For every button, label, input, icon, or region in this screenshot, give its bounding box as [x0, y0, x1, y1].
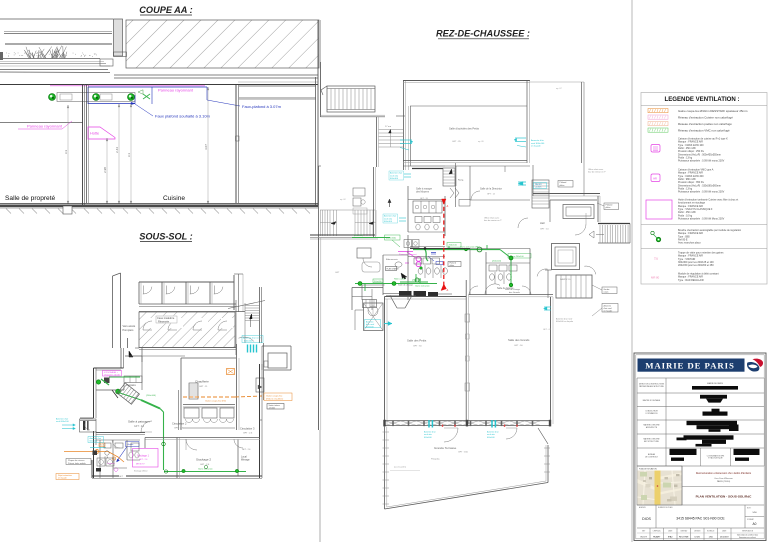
svg-text:Ø10cm chaufferie: Ø10cm chaufferie [266, 397, 284, 400]
svg-text:Rang.: Rang. [458, 180, 464, 182]
svg-text:ELIOT: ELIOT [641, 537, 648, 539]
svg-text:STOCKAGE +: STOCKAGE + [104, 371, 119, 374]
svg-text:plâtre: plâtre [560, 184, 566, 187]
svg-text:Hotte: Hotte [90, 132, 99, 136]
svg-text:Puissance absorbée : 0.09 kW m: Puissance absorbée : 0.09 kW mono 230V [678, 160, 725, 163]
svg-text:BET: BET [642, 531, 645, 533]
svg-text:GFT : 2.6: GFT : 2.6 [174, 428, 184, 430]
svg-text:Salle à patauger: Salle à patauger [128, 420, 150, 424]
svg-text:3.07: 3.07 [204, 144, 208, 150]
svg-text:ap. 02: ap. 02 [340, 199, 346, 201]
svg-text:3.1: 3.1 [127, 153, 131, 158]
svg-text:600x100: 600x100 [384, 221, 393, 223]
svg-text:ET ACOUSTIQUE: ET ACOUSTIQUE [708, 457, 723, 460]
svg-text:600x100: 600x100 [244, 340, 253, 342]
svg-text:GFT : 2.6: GFT : 2.6 [139, 459, 148, 461]
svg-text:Type : RAD REGULAIR: Type : RAD REGULAIR [678, 279, 704, 282]
svg-text:RIV-TIME: RIV-TIME [679, 537, 689, 539]
svg-text:Chaufferie: Chaufferie [195, 380, 209, 384]
svg-text:GFT : 50: GFT : 50 [413, 346, 422, 348]
svg-text:GFT : 10: GFT : 10 [540, 229, 549, 231]
svg-text:D/DS: D/DS [695, 537, 701, 539]
svg-text:Salle de la Directrice: Salle de la Directrice [480, 188, 503, 191]
svg-text:Prévoir hotte mobile: Prévoir hotte mobile [68, 462, 87, 465]
svg-text:HUART: HUART [653, 536, 661, 539]
svg-text:Restructuration et Extension d: Restructuration et Extension d'un Jardin… [696, 472, 752, 475]
svg-text:Amenée d'air: Amenée d'air [384, 215, 396, 218]
svg-text:Cuisine: Cuisine [163, 195, 185, 202]
svg-text:ap. 09: ap. 09 [478, 141, 484, 143]
svg-text:en façade: en façade [604, 311, 614, 313]
svg-text:des Moyens: des Moyens [416, 191, 430, 194]
svg-text:MR 80: MR 80 [651, 276, 660, 280]
svg-text:Amenée d'air: Amenée d'air [424, 431, 436, 434]
svg-text:Avec manchon placo: Avec manchon placo [678, 242, 701, 245]
svg-text:(accès jardin): (accès jardin) [394, 467, 406, 469]
svg-text:300x200: 300x200 [374, 281, 383, 283]
svg-text:2.44: 2.44 [115, 147, 119, 153]
svg-text:D'OPERATION: D'OPERATION [646, 412, 659, 415]
svg-text:PLAN CHANGE: PLAN CHANGE [387, 268, 400, 271]
svg-text:corps: corps [604, 291, 609, 293]
svg-text:Amenée: Amenée [366, 320, 374, 323]
svg-text:600x100: 600x100 [487, 437, 496, 439]
svg-text:Gaine coupe-feu Ø10cm DESSTAFF: Gaine coupe-feu Ø10cm DESSTAFF épaisseur… [678, 109, 748, 113]
svg-text:MAIRIE DE PARIS: MAIRIE DE PARIS [707, 382, 723, 385]
svg-text:Stockage référez: Stockage référez [134, 470, 148, 473]
svg-text:DESSIN: DESSIN [694, 531, 701, 533]
svg-text:GFT: GFT [335, 272, 340, 274]
svg-text:Gaine coupe-feu: Gaine coupe-feu [266, 395, 283, 397]
svg-text:A: A [447, 204, 449, 208]
svg-text:200x150 pour les 200/200 et 25: 200x150 pour les 200/200 et 250 [678, 264, 714, 267]
svg-text:Biberonnerie: Biberonnerie [386, 258, 399, 261]
svg-text:DIOS: DIOS [642, 517, 651, 521]
svg-text:600x100: 600x100 [424, 437, 433, 439]
svg-text:Vestiaires (4.05): Vestiaires (4.05) [104, 374, 120, 377]
svg-text:A0: A0 [753, 522, 757, 526]
svg-text:PATRIMOINE ARCHITECTURE: PATRIMOINE ARCHITECTURE [639, 385, 665, 388]
svg-text:(200x100): (200x100) [492, 261, 501, 263]
svg-text:Hotte cuisine: Hotte cuisine [394, 278, 406, 281]
svg-text:Ménage: Ménage [241, 459, 250, 462]
svg-text:01/04/19: 01/04/19 [720, 537, 729, 539]
svg-text:BET STRUCTURE: BET STRUCTURE [644, 441, 659, 443]
svg-text:17 mo: 17 mo [385, 126, 392, 128]
svg-text:plâtre: plâtre [450, 264, 455, 267]
svg-text:GFT : 11: GFT : 11 [199, 386, 208, 388]
svg-text:Circulation 2: Circulation 2 [172, 422, 187, 426]
svg-text:Puissance absorbée : 0.09 kW M: Puissance absorbée : 0.09 kW Mono 230V [678, 217, 725, 220]
svg-text:Stockage 2: Stockage 2 [196, 458, 211, 462]
svg-text:+0.45m: +0.45m [535, 187, 542, 189]
svg-text:des Grands: des Grands [509, 291, 520, 294]
svg-text:COUPE AA :: COUPE AA : [139, 5, 192, 15]
svg-text:ECH :: ECH : [747, 508, 752, 510]
svg-text:neuf otto: neuf otto [390, 174, 399, 177]
svg-text:GFT : 35: GFT : 35 [452, 141, 461, 143]
svg-text:Gaine extraction: Gaine extraction [198, 468, 213, 471]
svg-text:Salle des Petits: Salle des Petits [407, 339, 427, 343]
svg-text:A: A [447, 288, 449, 292]
svg-text:600x100: 600x100 [390, 178, 399, 180]
svg-text:RAMPE 5%: RAMPE 5% [560, 278, 571, 281]
svg-text:600x100: 600x100 [366, 327, 375, 329]
svg-text:neuf 600x100: neuf 600x100 [531, 143, 545, 145]
svg-text:(200x100): (200x100) [146, 395, 156, 397]
svg-text:Salle de change: Salle de change [398, 285, 414, 287]
svg-text:neuf otto: neuf otto [384, 217, 393, 220]
svg-text:Salle du Grande: Salle du Grande [497, 287, 514, 290]
svg-text:Faux-plafond à 3.07m: Faux-plafond à 3.07m [242, 104, 282, 109]
svg-text:Réservée: Réservée [158, 319, 170, 323]
svg-text:Amenée d'air: Amenée d'air [56, 418, 68, 421]
svg-text:neuf otto: neuf otto [424, 433, 433, 436]
svg-text:GFT : 50: GFT : 50 [514, 345, 523, 347]
svg-text:3.3: 3.3 [64, 150, 68, 155]
svg-text:plâtre: plâtre [606, 206, 612, 209]
svg-text:DE CONTROLE: DE CONTROLE [645, 457, 658, 459]
svg-text:GFT : 160: GFT : 160 [458, 452, 469, 454]
svg-text:Salle d'activités des Petits: Salle d'activités des Petits [449, 127, 480, 131]
svg-text:Circulation 3: Circulation 3 [240, 427, 255, 431]
svg-text:Pompiers: Pompiers [123, 328, 135, 332]
svg-text:Panneau rayonnant: Panneau rayonnant [27, 124, 63, 129]
svg-text:200x100: 200x100 [449, 245, 458, 247]
svg-text:REZ-DE-CHAUSSEE :: REZ-DE-CHAUSSEE : [436, 29, 530, 39]
svg-text:Hall: Hall [540, 221, 545, 225]
svg-text:Amenée: Amenée [604, 304, 612, 307]
svg-text:SOUS-SOL :: SOUS-SOL : [139, 232, 192, 242]
svg-text:GFT : 02: GFT : 02 [543, 329, 552, 331]
svg-text:Réseau d'extraction Cuisine no: Réseau d'extraction Cuisine non calorifu… [678, 116, 733, 120]
svg-text:ECHELLE: ECHELLE [707, 531, 714, 533]
svg-text:GFT : 2.6: GFT : 2.6 [243, 433, 253, 435]
svg-text:Panneau rayonnant: Panneau rayonnant [158, 88, 194, 93]
svg-text:Amenée d'air neuf: Amenée d'air neuf [556, 318, 573, 321]
svg-text:Grande Terrasse: Grande Terrasse [434, 446, 457, 450]
svg-text:Amenée d'air: Amenée d'air [390, 172, 402, 175]
svg-text:LEGENDE VENTILATION :: LEGENDE VENTILATION : [664, 96, 739, 103]
svg-text:en façade: en façade [531, 146, 541, 148]
svg-text:Office relais avec: Office relais avec [484, 218, 499, 220]
svg-text:Salle des Grands: Salle des Grands [508, 338, 530, 342]
svg-text:2.98: 2.98 [103, 167, 107, 173]
svg-text:en façade: en façade [58, 478, 68, 480]
svg-text:four de remise en T°: four de remise en T° [484, 220, 502, 222]
svg-text:PARIS (75016): PARIS (75016) [717, 480, 731, 483]
svg-text:neuf otto: neuf otto [487, 433, 496, 436]
svg-text:Gaine coupe-feu Ø10: Gaine coupe-feu Ø10 [205, 401, 227, 403]
svg-text:ARCHITECTE: ARCHITECTE [646, 426, 658, 429]
svg-text:Gaine extraction: Gaine extraction [415, 285, 430, 288]
svg-text:Amenée d'air: Amenée d'air [531, 139, 544, 142]
svg-text:IFAZ: IFAZ [668, 536, 673, 539]
svg-text:Amenée d'air: Amenée d'air [487, 431, 499, 434]
svg-text:MR 80 TV: MR 80 TV [136, 464, 145, 466]
svg-text:HR: HR [653, 176, 657, 180]
svg-text:MAITRE D'OUVRAGE: MAITRE D'OUVRAGE [643, 399, 661, 402]
svg-text:MAIRIE DE PARIS: MAIRIE DE PARIS [645, 361, 735, 371]
svg-text:PLAN VENTILATION - SOUS-SOL/Rd: PLAN VENTILATION - SOUS-SOL/RdC [696, 495, 753, 499]
svg-text:(200x100): (200x100) [354, 235, 363, 237]
svg-text:PLAN DE SITUATION: PLAN DE SITUATION [639, 467, 657, 470]
svg-text:Vers accès: Vers accès [123, 324, 136, 328]
svg-text:neuf 600x100: neuf 600x100 [56, 421, 69, 423]
svg-text:3415 S8445 PAC S01-N00 DCE: 3415 S8445 PAC S01-N00 DCE [676, 517, 725, 521]
svg-text:four de remise en T°: four de remise en T° [588, 172, 606, 174]
svg-text:Salle de propreté: Salle de propreté [5, 195, 56, 202]
svg-text:ap. 07: ap. 07 [556, 88, 562, 90]
svg-text:Puissance absorbée : 0.09 kW m: Puissance absorbée : 0.09 kW mono 230V [678, 191, 725, 194]
svg-text:GFT : 12: GFT : 12 [487, 194, 496, 196]
svg-text:Réseau d'extraction poêles non: Réseau d'extraction poêles non calorifug… [678, 122, 732, 126]
svg-text:Amenée d'air: Amenée d'air [90, 437, 102, 440]
svg-text:600x100 en façade: 600x100 en façade [556, 321, 574, 323]
svg-text:Pergolas: Pergolas [431, 458, 441, 461]
svg-text:Réseau d'extraction VMC non ca: Réseau d'extraction VMC non calorifugé [678, 129, 730, 133]
svg-text:Amenée d'air neuf: Amenée d'air neuf [243, 337, 261, 340]
svg-text:GFT : 2.6: GFT : 2.6 [242, 449, 251, 451]
svg-text:+8.00m: +8.00m [269, 407, 276, 409]
svg-text:Faux plafond souhaité à 3.10m: Faux plafond souhaité à 3.10m [155, 114, 211, 119]
